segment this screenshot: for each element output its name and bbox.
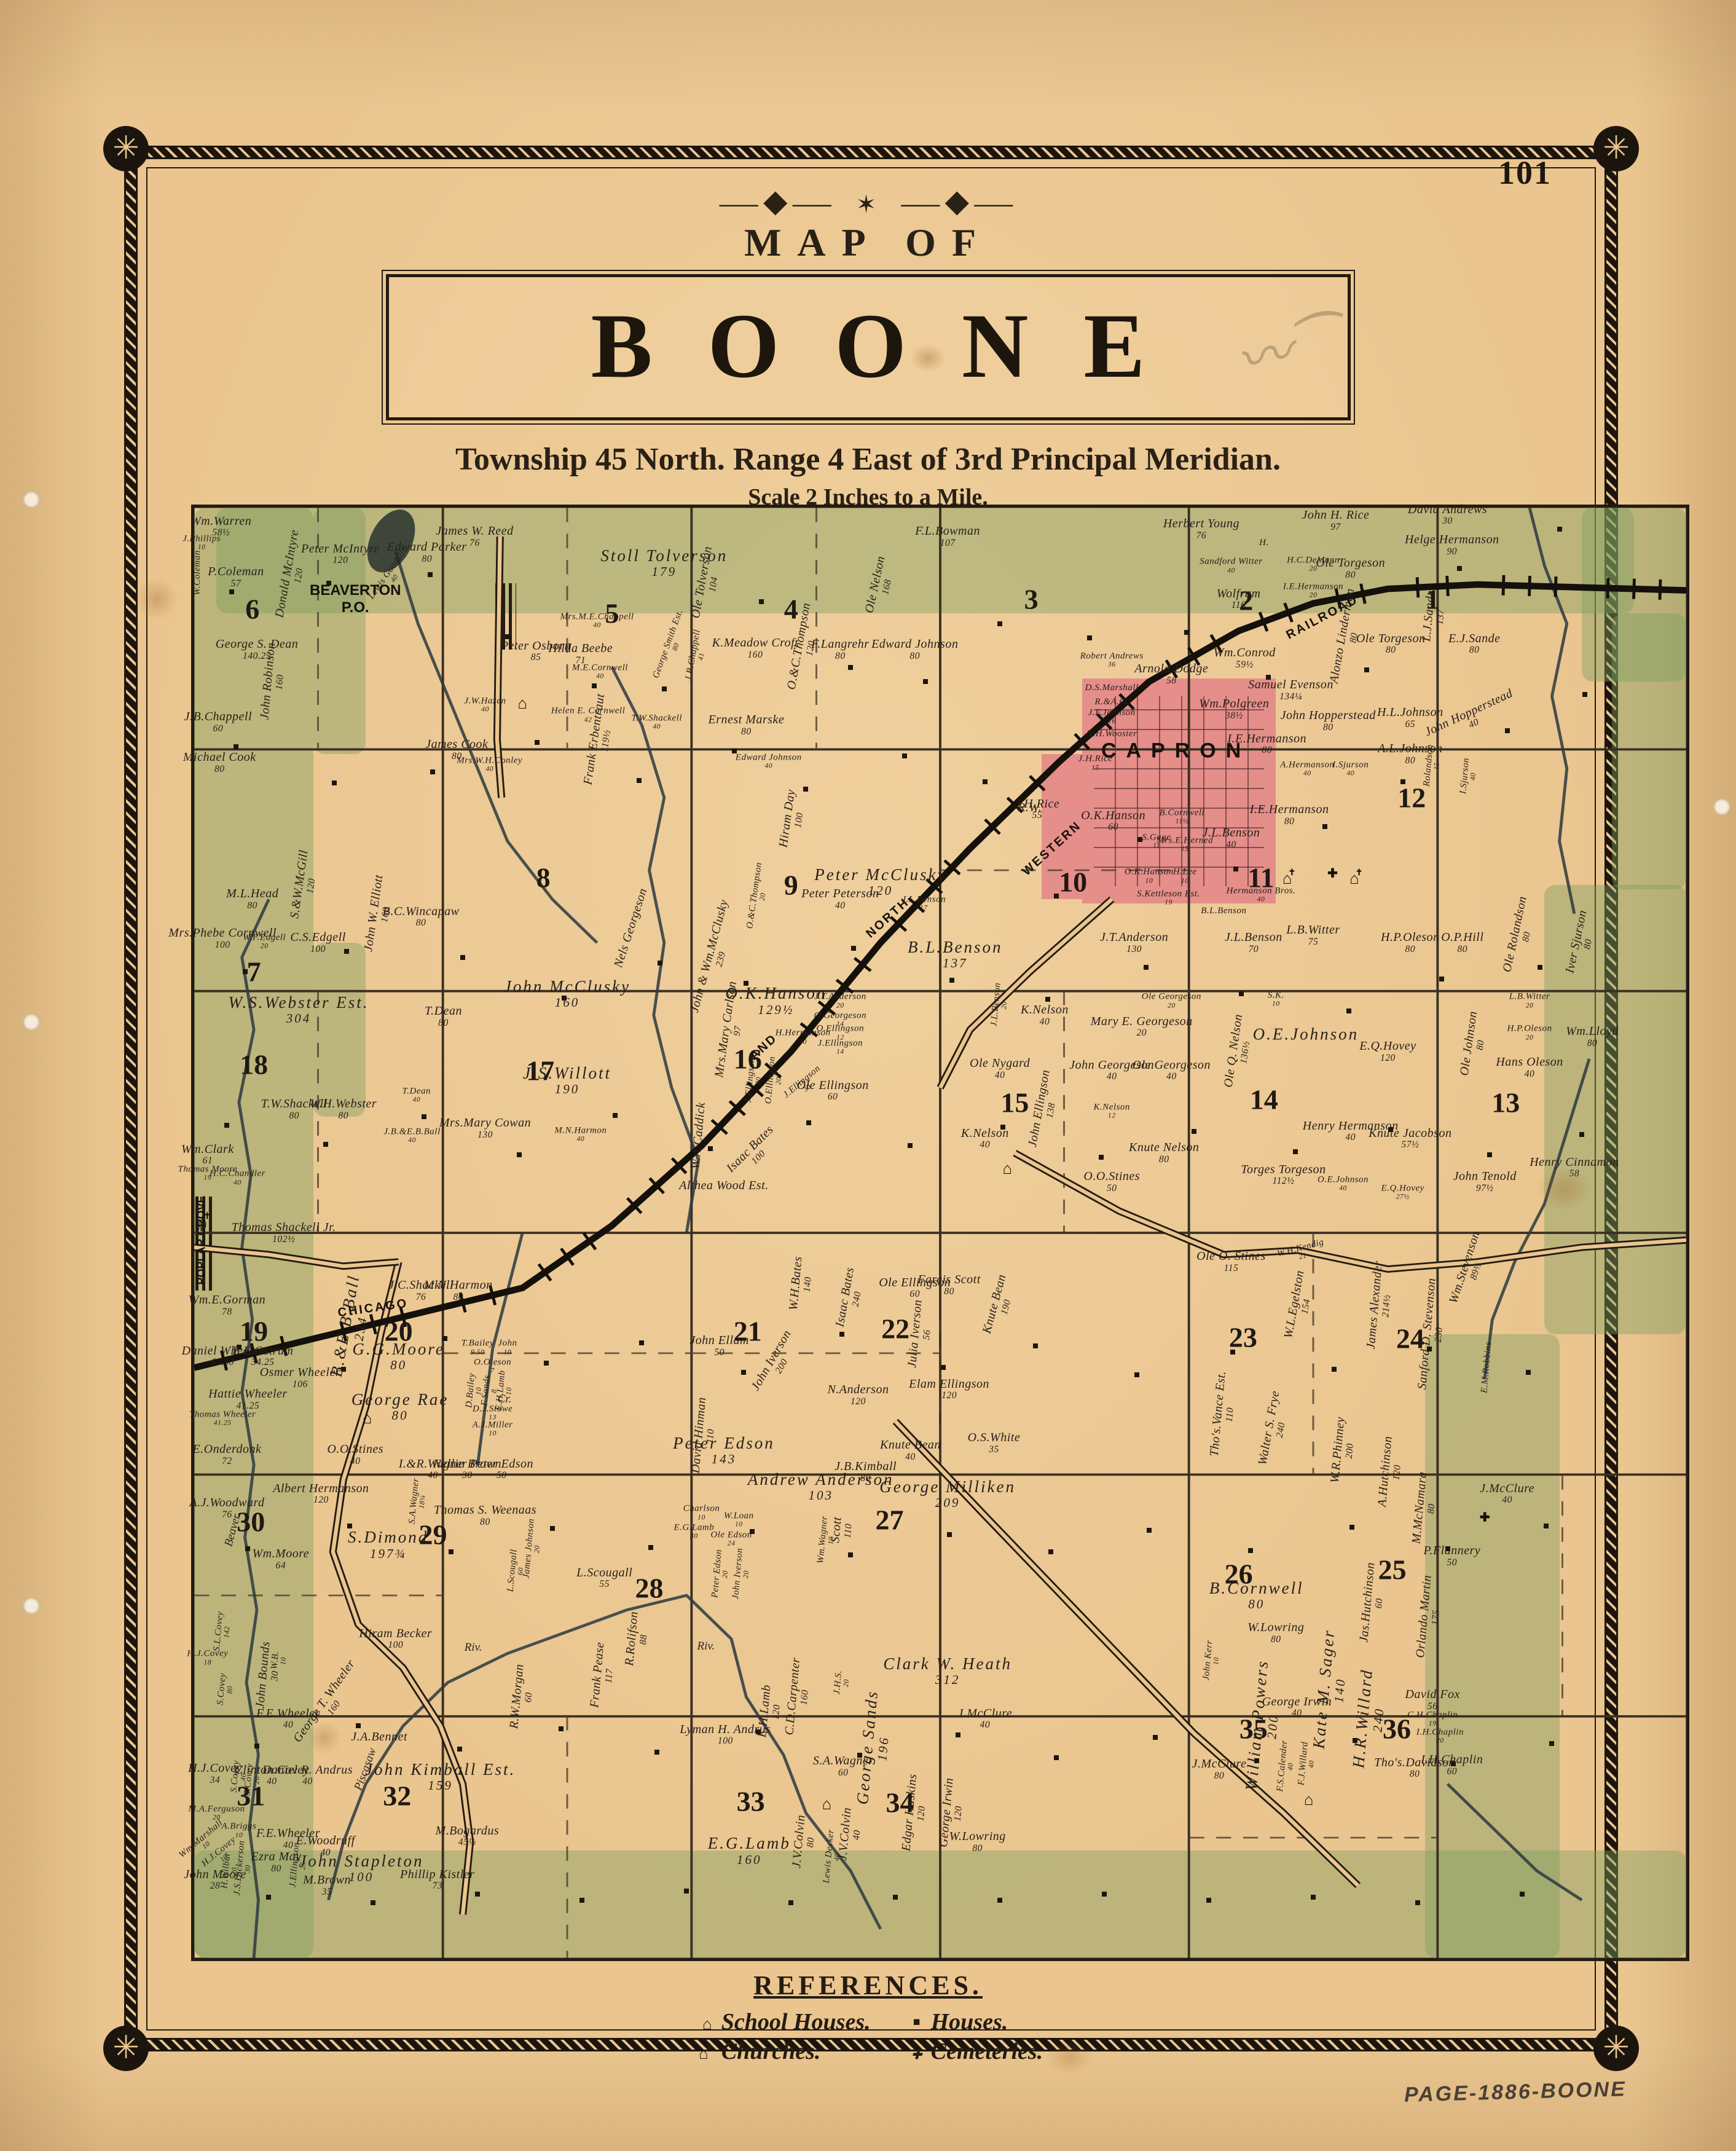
owner-label: C.S.Edgell100 — [290, 931, 346, 954]
owner-label: Knute Bean40 — [880, 1439, 941, 1462]
owner-label: J.W.Hazen40 — [464, 696, 506, 714]
house-marker — [505, 634, 510, 639]
punch-hole — [1714, 799, 1730, 815]
owner-label: D.S.Marshall — [1085, 683, 1139, 693]
owner-label: H.C.Chandler40 — [210, 1169, 265, 1187]
owner-label: R.&A.G. — [1094, 697, 1129, 707]
owner-label: James W. Reed76 — [436, 525, 513, 548]
house-marker — [1526, 1370, 1531, 1375]
house-marker — [1505, 728, 1510, 733]
owner-label: F.L.Bowman107 — [915, 525, 980, 548]
house-marker — [684, 1889, 689, 1893]
owner-label: O.E.Johnson40 — [1318, 1174, 1369, 1192]
house-marker — [803, 787, 808, 792]
owner-label: K.Nelson40 — [961, 1127, 1009, 1150]
house-marker — [839, 1332, 844, 1337]
house-marker — [1137, 837, 1142, 842]
owner-label: Robert Andrews36 — [1080, 651, 1144, 669]
house-marker — [613, 1113, 618, 1118]
owner-label: Mrs.Mary Cowan130 — [439, 1117, 531, 1140]
section-number: 12 — [1397, 782, 1426, 814]
owner-label: I.Sjurson40 — [1458, 757, 1479, 795]
water-label: Cr. — [498, 1393, 512, 1406]
owner-label: W.B.10 — [270, 1651, 289, 1670]
house-marker — [1415, 1900, 1420, 1905]
owner-label: N.H.Wooster — [1086, 729, 1137, 739]
owner-label: P.Flannery50 — [1423, 1544, 1480, 1568]
owner-label: J.B.&E.B.Ball40 — [383, 1127, 440, 1144]
owner-label: Ole Nygard40 — [970, 1057, 1030, 1080]
owner-label: L.B.Witter20 — [1509, 992, 1550, 1010]
legend-title: REFERENCES. — [0, 1970, 1736, 2001]
section-number: 14 — [1250, 1083, 1278, 1115]
house-marker — [848, 665, 853, 670]
owner-label: K.Nelson12 — [1094, 1102, 1130, 1120]
house-marker — [1266, 675, 1271, 680]
owner-label: J.H.S.20 — [832, 1670, 852, 1696]
owner-label: Henry Cinnamon58 — [1530, 1156, 1619, 1179]
house-marker — [341, 1367, 346, 1372]
section-number: 36 — [1383, 1713, 1411, 1745]
section-number: 24 — [1396, 1323, 1424, 1355]
section-number: 26 — [1225, 1557, 1253, 1590]
house-marker — [788, 1900, 793, 1905]
section-number: 9 — [784, 868, 798, 901]
owner-label: D.J.Stowe13 — [473, 1404, 513, 1422]
owner-label: Hans Oleson40 — [1496, 1056, 1563, 1079]
owner-label: Sandford Witter40 — [1200, 557, 1262, 575]
house-marker — [1427, 1347, 1432, 1351]
owner-label: H.P.Oleson80 — [1381, 931, 1440, 954]
owner-label: T.Bailey9.50 — [461, 1339, 494, 1356]
owner-label: Thomas S. Weenaas80 — [434, 1504, 536, 1527]
owner-label: John Tenold97½ — [1453, 1170, 1517, 1193]
owner-label: R.W. — [1018, 801, 1042, 815]
house-marker — [997, 621, 1002, 626]
section-number: 27 — [875, 1504, 903, 1536]
house-marker — [941, 1365, 946, 1370]
house-marker — [848, 1552, 853, 1557]
church-icon — [693, 2038, 721, 2065]
owner-label: S.Covey80 — [215, 1673, 235, 1707]
house-marker — [637, 778, 642, 783]
house-marker — [430, 769, 435, 774]
section-number: 32 — [383, 1779, 411, 1812]
house-marker — [893, 1895, 898, 1900]
owner-label: E.E.Ostrum34.25 — [232, 1344, 293, 1367]
owner-label: I.E.Hermanson20 — [1283, 581, 1343, 599]
house-marker — [923, 679, 928, 684]
house-marker — [902, 753, 907, 758]
house-marker — [323, 1142, 328, 1147]
owner-label: T.Dean80 — [425, 1005, 462, 1028]
house-marker — [1544, 1524, 1549, 1528]
owner-label: J.T.Anderson20 — [814, 992, 866, 1010]
section-number: 15 — [1000, 1086, 1029, 1119]
owner-label: J.F.Johnson16 — [1088, 707, 1136, 725]
house-marker — [956, 1732, 960, 1737]
owner-label: T.W.Shackell40 — [631, 714, 682, 731]
owner-label: W.Lowring80 — [1247, 1621, 1304, 1645]
house-marker — [1388, 1127, 1393, 1132]
house-marker — [1000, 1125, 1005, 1130]
handwritten-annotation: PAGE-1886-BOONE — [1404, 2077, 1627, 2107]
legend-table: School Houses. ▪Houses. Churches. Cemete… — [677, 2007, 1059, 2066]
owner-label: Ole Torgeson80 — [1356, 632, 1426, 656]
owner-label: Albert Hermanson120 — [273, 1482, 369, 1506]
title-township-name: BOONE — [389, 293, 1348, 399]
owner-label: B.Cornwell80 — [1209, 1579, 1304, 1611]
house-marker — [1457, 566, 1462, 571]
house-marker — [1579, 1132, 1584, 1137]
owner-label: J.McClure40 — [1480, 1482, 1534, 1506]
owner-label: Mary E. Georgeson20 — [1091, 1015, 1193, 1039]
house-marker — [1230, 1350, 1235, 1355]
house-marker — [1054, 1755, 1059, 1760]
owner-label: I.E.Hermanson80 — [1250, 803, 1329, 827]
house-marker — [741, 1370, 746, 1375]
house-marker — [1206, 1898, 1211, 1903]
school-house-icon — [822, 1795, 832, 1814]
owner-label: Phillip Kistler73 — [400, 1868, 474, 1891]
owner-label: Peter Edson143 — [673, 1434, 775, 1466]
owner-label: E.G.Lamb160 — [708, 1834, 791, 1866]
section-number: 25 — [1378, 1553, 1407, 1586]
owner-label: Scott110 — [829, 1516, 855, 1544]
owner-label: W.H.Bates140 — [787, 1256, 815, 1311]
house-marker — [460, 955, 465, 960]
house-marker — [1099, 1155, 1104, 1160]
owner-label: Mrs.W.H.Conley40 — [457, 755, 522, 773]
legend-churches: Churches. — [677, 2037, 887, 2066]
owner-label: E.Onderdonk72 — [192, 1443, 261, 1466]
house-marker — [658, 961, 662, 965]
owner-label: S.Kettleson Est.19 — [1137, 889, 1200, 906]
house-marker — [732, 749, 737, 753]
section-number: 4 — [784, 593, 798, 626]
section-number: 34 — [886, 1787, 914, 1819]
house-marker — [332, 781, 337, 785]
house-marker — [1332, 1367, 1337, 1372]
owner-label: E.J.Sande80 — [1448, 632, 1500, 656]
house-marker — [947, 1532, 952, 1537]
house-marker — [457, 1747, 462, 1752]
house-marker — [708, 1146, 713, 1151]
house-marker — [1239, 991, 1244, 996]
owner-label: Althea Wood Est. — [679, 1180, 769, 1193]
section-number: 5 — [605, 597, 619, 630]
owner-label: Peter McIntyre120 — [301, 542, 380, 565]
legend-school-houses: School Houses. — [677, 2007, 887, 2037]
owner-label: Ole Torgeson80 — [1316, 557, 1385, 580]
house-marker — [234, 744, 238, 749]
house-marker — [1322, 824, 1327, 829]
house-marker — [1134, 1372, 1139, 1377]
owner-label: F.Langrehr80 — [811, 638, 869, 661]
house-marker — [1192, 1129, 1196, 1134]
owner-label: F.E.Wheeler40 — [256, 1707, 320, 1730]
owner-label: Thomas Shackell Jr.102½ — [232, 1221, 336, 1245]
section-number: 13 — [1491, 1086, 1520, 1119]
owner-label: Michael Cook80 — [183, 751, 256, 774]
owner-label: H. — [1259, 538, 1269, 548]
owner-label: W.F.Edgell20 — [243, 932, 286, 950]
corner-rosette-icon: ✳ — [103, 126, 149, 171]
punch-hole — [23, 492, 39, 508]
owner-label: B.L.Benson — [1201, 906, 1246, 916]
owner-label: Ole O. Stines115 — [1196, 1250, 1266, 1273]
house-marker — [1346, 1009, 1351, 1013]
punch-hole — [23, 1014, 39, 1030]
house-marker — [243, 969, 248, 974]
owner-label: S.K.10 — [1268, 991, 1284, 1009]
owner-label: K.Meadow Croft160 — [712, 637, 799, 660]
school-house-icon — [1304, 1791, 1314, 1809]
house-marker — [347, 1524, 352, 1528]
section-number: 18 — [240, 1048, 268, 1081]
owner-label: M.N.Harmon80 — [424, 1279, 493, 1302]
house-marker — [1254, 1758, 1259, 1763]
house-marker — [475, 1892, 480, 1897]
owner-label: Hattie Wheeler41.25 — [208, 1388, 288, 1411]
house-marker — [592, 683, 597, 688]
house-marker — [442, 1336, 447, 1341]
house-marker — [371, 1900, 375, 1905]
railroad-tick — [1555, 576, 1556, 597]
owner-label: T.Dean40 — [403, 1086, 431, 1104]
place-label: BEAVERTONP.O. — [310, 582, 401, 616]
house-marker — [662, 686, 667, 691]
house-marker — [756, 1729, 761, 1734]
house-marker — [1233, 867, 1238, 871]
house-marker — [356, 1723, 361, 1728]
owner-label: Herbert Young76 — [1163, 517, 1239, 541]
section-number: 7 — [247, 956, 261, 988]
house-marker — [1045, 997, 1050, 1002]
school-house-icon — [1002, 1160, 1012, 1178]
owner-label: N.Anderson120 — [827, 1383, 889, 1407]
house-marker — [254, 1744, 259, 1748]
railroad-tick — [1530, 576, 1530, 596]
owner-label: John H. Rice97 — [1302, 509, 1369, 532]
house-marker — [639, 1340, 644, 1345]
punch-hole — [23, 1598, 39, 1614]
house-marker — [266, 1895, 271, 1900]
owner-label: Wm.Clark61 — [181, 1142, 234, 1166]
title-map-of: MAP OF — [0, 220, 1736, 265]
place-label: POPLAR GROVE — [195, 1195, 208, 1284]
house-marker — [949, 978, 954, 983]
owner-label: J.McClure80 — [1192, 1758, 1247, 1781]
owner-label: O.K.Hanson60 — [1081, 809, 1145, 833]
owner-label: M.E.Cornwell40 — [572, 663, 628, 680]
section-number: 29 — [418, 1518, 447, 1551]
owner-label: W.Loan10 — [724, 1511, 754, 1529]
owner-label: Ernest Marske80 — [709, 714, 785, 737]
owner-label: Ole Georgeson40 — [1133, 1058, 1211, 1082]
railroad-tick — [1417, 577, 1418, 597]
map-canvas: Wm.Warren58½J.Phillips10W.ColemanP.Colem… — [192, 505, 1689, 1960]
church-icon — [1349, 870, 1366, 888]
owner-label: E.Q.Hovey120 — [1359, 1040, 1416, 1063]
house-marker — [1582, 692, 1587, 697]
railroad-tick — [1660, 580, 1660, 600]
owner-label: Thomas Wheeler41.25 — [189, 1410, 256, 1428]
place-label: CAPRON — [1101, 739, 1251, 763]
owner-label: B.L.Benson137 — [908, 938, 1003, 970]
section-number: 31 — [237, 1779, 265, 1812]
house-marker — [1184, 630, 1189, 635]
owner-label: W.Coleman — [192, 550, 202, 596]
owner-label: B.C.Wincapaw80 — [383, 905, 460, 928]
section-number: 8 — [536, 861, 551, 894]
owner-label: Samuel Evenson134¼ — [1248, 678, 1333, 702]
owner-label: M.N.Harmon40 — [554, 1125, 607, 1143]
owner-label: P.Coleman57 — [208, 565, 264, 589]
owner-label: J.B.Kimball80 — [835, 1460, 897, 1484]
house-marker — [857, 1753, 862, 1758]
cemetery-icon — [1480, 1509, 1490, 1525]
house-marker — [1349, 1525, 1354, 1530]
house-marker — [1087, 635, 1092, 640]
house-marker — [806, 1120, 811, 1125]
house-marker — [428, 572, 433, 577]
house-marker — [1048, 1549, 1053, 1554]
house-marker — [997, 1898, 1002, 1903]
house-marker — [1557, 527, 1562, 532]
house-marker — [1520, 1892, 1525, 1897]
owner-label: J.V.Colvin80 — [790, 1814, 819, 1870]
owner-label: Hiram Becker100 — [359, 1627, 432, 1651]
section-number: 10 — [1059, 865, 1087, 898]
house-marker — [1293, 1149, 1298, 1154]
railroad-tick — [1634, 579, 1635, 599]
section-number: 21 — [734, 1315, 762, 1348]
owner-label: H.Lee10 — [1173, 867, 1197, 885]
house-marker — [517, 1152, 522, 1157]
section-number: 19 — [240, 1315, 268, 1348]
house-marker — [759, 599, 764, 604]
school-house-icon — [363, 1409, 372, 1428]
references-legend: REFERENCES. School Houses. ▪Houses. Chur… — [0, 1970, 1736, 2066]
owner-label: J.Phillips10 — [183, 533, 221, 551]
house-marker — [559, 1726, 564, 1731]
house-marker — [1538, 965, 1542, 970]
owner-label: Elam Ellingson120 — [909, 1378, 989, 1401]
owner-label: Osmer Wheeler106 — [260, 1366, 340, 1390]
owner-label: O.E.Johnson — [1253, 1025, 1359, 1043]
owner-label: Clark W. Heath312 — [883, 1655, 1012, 1687]
owner-label: W.Lowring80 — [949, 1830, 1006, 1854]
section-number: 6 — [245, 593, 259, 626]
owner-label: Fareis Scott80 — [917, 1273, 980, 1297]
school-house-icon — [517, 694, 527, 713]
owner-label: Ole Ellingson60 — [797, 1079, 869, 1103]
owner-label: John Kerr10 — [1201, 1640, 1222, 1681]
house-marker — [1549, 1741, 1554, 1746]
owner-label: C.H.Chaplin19 — [1407, 1710, 1458, 1728]
house-marker — [1033, 1343, 1038, 1348]
owner-label: Peter Peterson40 — [801, 887, 879, 911]
section-number: 33 — [737, 1785, 765, 1818]
owner-label: O.O.Stines50 — [1083, 1170, 1140, 1193]
owner-label: I.H.Chaplin20 — [1416, 1728, 1464, 1745]
house-marker — [449, 1549, 454, 1554]
house-marker — [1147, 1528, 1152, 1533]
section-number: 22 — [881, 1312, 909, 1345]
owner-label: L.Scougall55 — [576, 1566, 632, 1589]
church-icon — [1282, 870, 1299, 888]
section-number: 28 — [635, 1572, 664, 1605]
section-number: 2 — [1239, 584, 1253, 617]
plat-map-page: ✳ ✳ ✳ ✳ 101 ⸺◆⸺ ✶ ⸺◆⸺ MAP OF BOONE Towns… — [0, 0, 1736, 2151]
owner-label: O.K.Hanson10 — [1125, 867, 1174, 885]
owner-label: S.L.Covey142 — [212, 1611, 233, 1653]
cemetery-icon — [1327, 865, 1338, 881]
house-marker — [654, 1750, 659, 1755]
owner-label: Edward Johnson40 — [736, 753, 802, 771]
water-label: Riv. — [697, 1640, 715, 1653]
owner-label: E.Q.Hovey27½ — [1381, 1184, 1424, 1201]
owner-label: J.A.Bennet — [351, 1731, 407, 1744]
creek — [1530, 508, 1574, 914]
owner-label: J.L.Benson70 — [1225, 931, 1282, 954]
house-marker — [326, 581, 331, 586]
house-marker — [1144, 965, 1149, 970]
section-number: 3 — [1024, 583, 1039, 615]
owner-label: O.O.Stines40 — [327, 1443, 383, 1466]
owner-label: R.Rolifson88 — [623, 1611, 651, 1667]
owner-label: Knute Jacobson57½ — [1369, 1127, 1451, 1150]
house-marker — [1400, 779, 1405, 784]
owner-label: Ole Edson24 — [710, 1530, 752, 1548]
owner-label: J.L.Benson40 — [1203, 827, 1260, 850]
house-marker — [224, 1123, 229, 1128]
title-banner: BOONE — [386, 274, 1351, 420]
house-marker — [535, 740, 540, 745]
house-marker — [1451, 1761, 1456, 1766]
house-marker — [1445, 1546, 1450, 1551]
owner-label: E.G.Lamb30 — [674, 1523, 715, 1541]
house-marker — [851, 946, 856, 951]
section-number: 11 — [1247, 861, 1274, 894]
owner-label: O.S.White35 — [968, 1431, 1021, 1455]
house-marker — [983, 779, 988, 784]
owner-label: John10 — [498, 1339, 517, 1356]
house-marker — [1364, 667, 1369, 672]
owner-label: Knute Nelson80 — [1129, 1141, 1199, 1165]
owner-label: J.Ellingson14 — [818, 1039, 863, 1056]
owner-label: Wm.Moore64 — [252, 1547, 309, 1571]
house-marker — [744, 981, 748, 986]
owner-label: Wm.Conrod59½ — [1214, 647, 1276, 670]
owner-label: J.McClure40 — [957, 1707, 1012, 1730]
owner-label: J.V.Colvin40 — [836, 1807, 865, 1862]
owner-label: Torges Torgeson112½ — [1241, 1163, 1326, 1186]
owner-label: Wm.Lloyd80 — [1566, 1025, 1619, 1048]
owner-label: Stoll Tolverson179 — [600, 547, 728, 579]
owner-label: B.Cornwell11½ — [1159, 808, 1204, 825]
house-marker — [1054, 894, 1059, 899]
owner-label: David Andrews30 — [1408, 503, 1487, 527]
house-marker — [1153, 1735, 1158, 1740]
title-ornament: ⸺◆⸺ ✶ ⸺◆⸺ — [0, 184, 1736, 220]
owner-label: David Fox56 — [1405, 1688, 1459, 1712]
house-marker — [1248, 1548, 1253, 1553]
house-marker — [1353, 1738, 1357, 1743]
owner-label: Edward Johnson80 — [871, 638, 958, 661]
owner-label: Ole Georgeson20 — [1142, 992, 1201, 1010]
